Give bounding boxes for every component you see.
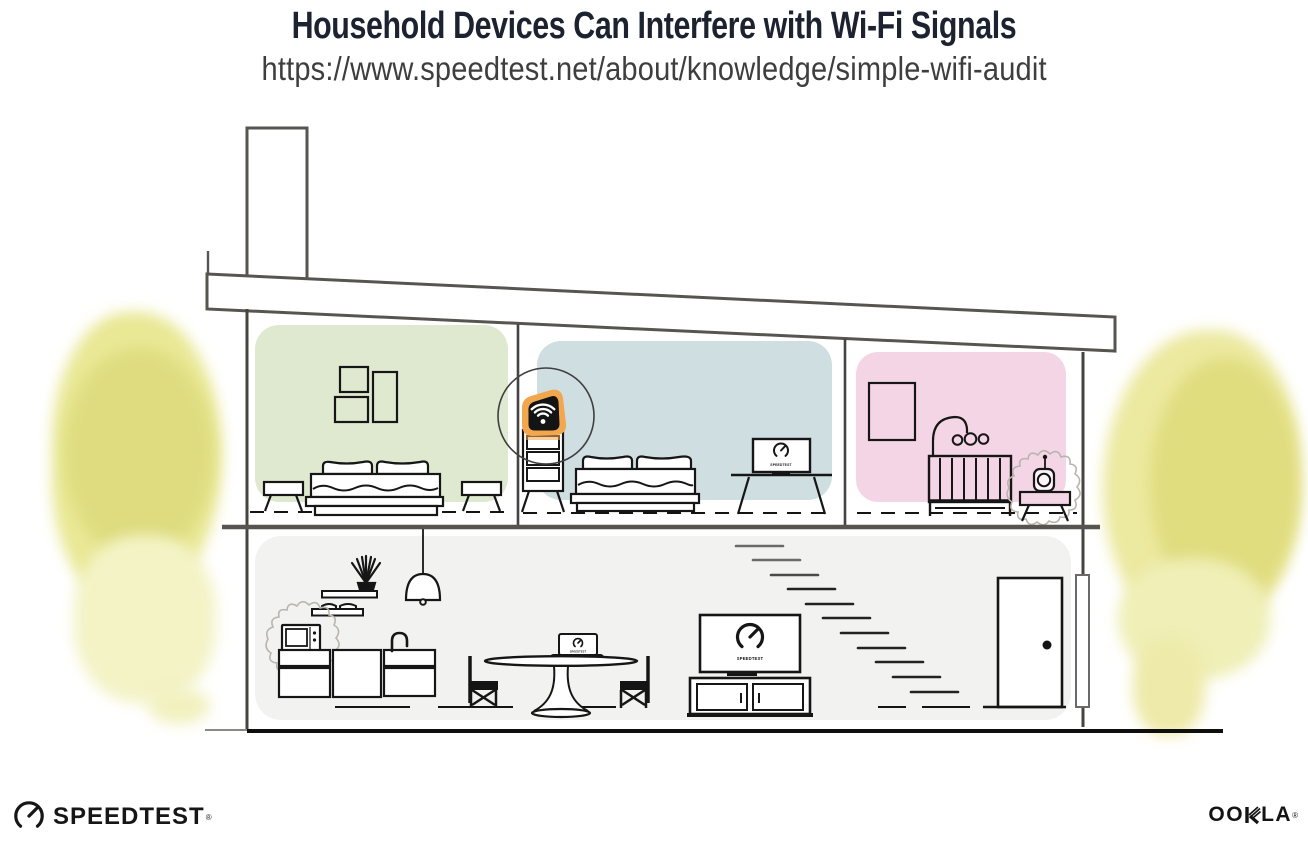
ookla-logo: OO LA ® [1208, 803, 1298, 827]
laptop-screen-label: SPEEDTEST [570, 650, 587, 654]
ookla-k-glyph [1244, 804, 1261, 826]
house-cross-section-illustration: SPEEDTEST [0, 0, 1308, 861]
speedtest-wordmark: SPEEDTEST [53, 803, 205, 831]
living-room-tv-area: SPEEDTEST [687, 615, 813, 715]
door-knob [1043, 641, 1052, 650]
microwave [282, 625, 320, 651]
bedroom-tv-screen-label: SPEEDTEST [770, 463, 792, 467]
speedtest-gauge-icon [12, 800, 46, 834]
kitchen-cabinets [279, 650, 435, 697]
speedtest-logo: SPEEDTEST ® [12, 800, 212, 834]
media-console [687, 678, 813, 715]
ookla-wordmark-right: LA [1261, 803, 1292, 827]
ookla-wordmark-left: OO [1208, 803, 1244, 827]
chimney [247, 128, 307, 281]
ookla-registered-mark: ® [1292, 811, 1298, 820]
living-room-tv-screen-label: SPEEDTEST [737, 656, 764, 661]
downspout-pipe [1076, 575, 1089, 707]
speedtest-registered-mark: ® [206, 813, 212, 822]
